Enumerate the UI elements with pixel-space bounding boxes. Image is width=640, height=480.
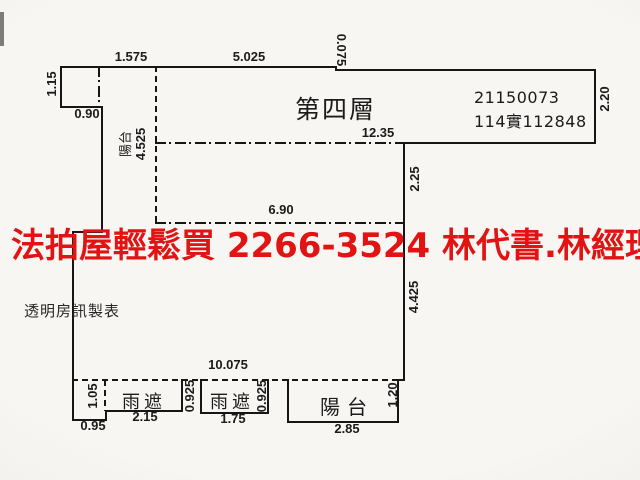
canopy1-label: 雨遮	[122, 388, 166, 414]
dim-top-offset: 1.575	[107, 50, 155, 63]
dim-balcony-depth: 1.20	[386, 378, 400, 412]
dashline-eave	[72, 379, 399, 381]
wall-topbox-left	[60, 66, 62, 108]
credit-label: 透明房訊製表	[24, 300, 120, 321]
balcony-label: 陽台	[320, 391, 374, 420]
canopy2-label: 雨遮	[210, 388, 254, 414]
dim-canopy1-depth: 0.925	[183, 376, 197, 416]
wall-top-left	[60, 66, 337, 68]
left-balcony-label: 陽台 4.525	[119, 120, 149, 168]
wall-balcony-left	[287, 379, 289, 423]
dim-corner-depth: 1.05	[86, 380, 100, 412]
dashline-left-balcony-inner	[155, 66, 157, 223]
floor-plan-scan: 1.575 5.025 12.35 6.90 10.075 0.90 0.95 …	[0, 0, 640, 480]
floor-label: 第四層	[295, 90, 376, 126]
dashdot-topbox-right	[98, 66, 100, 107]
wall-top-right	[335, 69, 596, 71]
dim-mid-width: 6.90	[261, 203, 301, 216]
wall-left-upper	[101, 106, 103, 233]
wall-band-bottom	[403, 142, 596, 144]
dim-upper-right-height: 2.25	[408, 162, 422, 196]
wall-right-upper	[594, 69, 596, 144]
dim-top-width: 5.025	[225, 50, 273, 63]
dim-band-width: 12.35	[354, 126, 402, 139]
dim-balcony-width: 2.85	[328, 422, 366, 435]
dim-corner-width: 0.95	[75, 419, 111, 432]
dashdot-band-bottom	[155, 142, 405, 144]
dashline-corner-box-right	[104, 380, 106, 411]
dim-band-height: 2.20	[598, 82, 612, 116]
watermark-ad: 法拍屋輕鬆買 2266-3524 林代書.林經理	[11, 218, 640, 267]
left-balcony-name: 陽台	[119, 120, 134, 168]
case-number: 21150073	[474, 88, 559, 107]
dim-lower-right-height: 4.425	[407, 276, 421, 318]
dim-box-width: 0.90	[69, 107, 105, 120]
dim-canopy2-depth: 0.925	[255, 376, 269, 416]
scan-artifact	[0, 12, 4, 46]
lot-number: 114實112848	[474, 108, 587, 132]
wall-canopy2-left	[200, 379, 202, 414]
dim-bottom-width: 10.075	[198, 358, 258, 371]
dim-box-height: 1.15	[45, 68, 59, 100]
dim-left-balcony-depth: 4.525	[134, 120, 148, 168]
dim-top-step: 0.075	[334, 30, 348, 70]
